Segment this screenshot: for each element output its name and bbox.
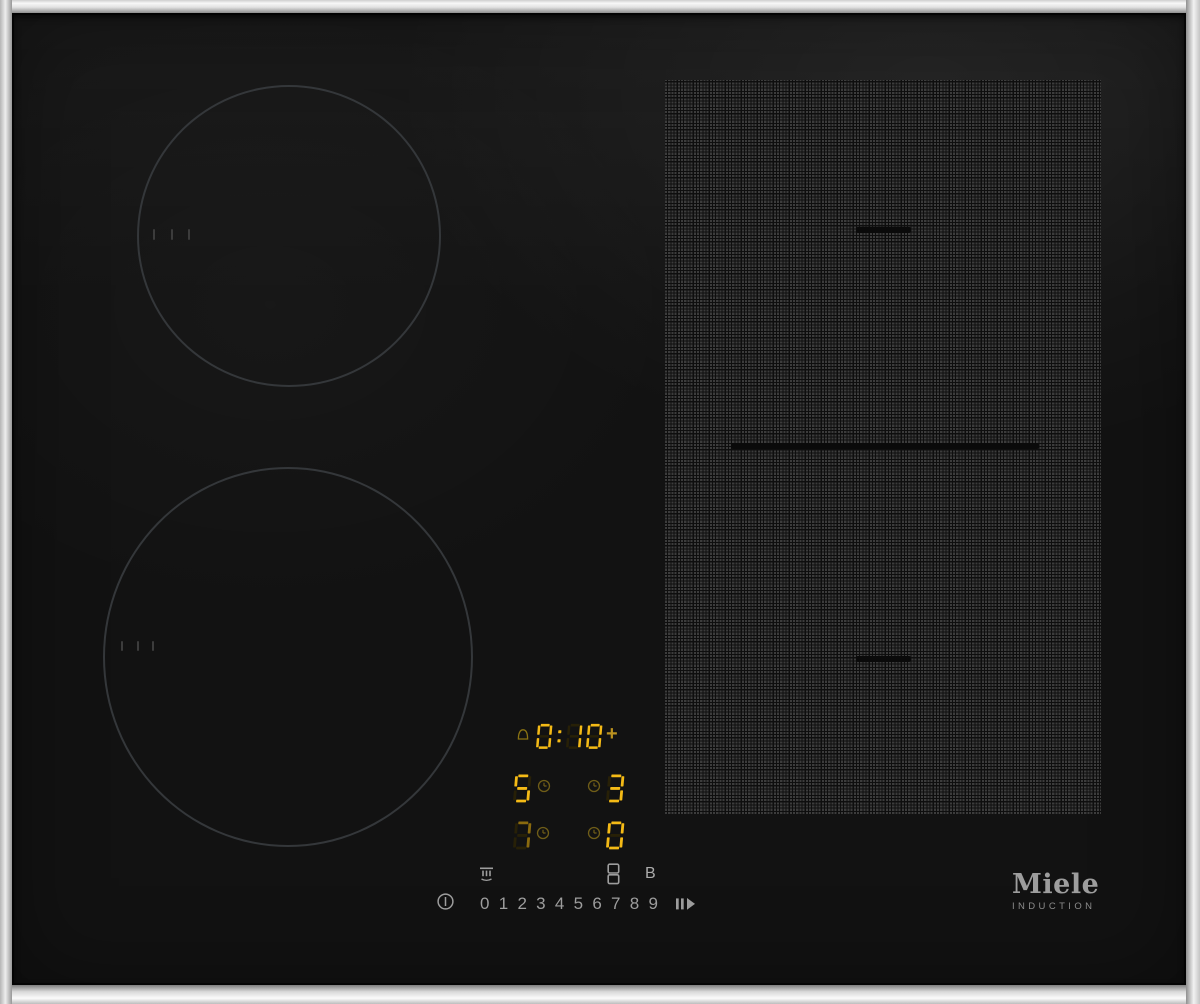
frame-bottom <box>0 985 1200 1004</box>
zone-divider-mark <box>856 656 911 662</box>
timer-clock-icon <box>587 779 601 793</box>
power-level-display <box>513 774 532 803</box>
power-level-display <box>513 821 532 850</box>
zone-marker <box>188 229 190 240</box>
cooking-zone-rear-left <box>137 85 441 387</box>
number-key-4[interactable]: 4 <box>555 894 564 914</box>
frame-right <box>1186 0 1200 1004</box>
zone-marker <box>171 229 173 240</box>
number-key-6[interactable]: 6 <box>592 894 601 914</box>
zone-marker <box>153 229 155 240</box>
number-key-row: 0123456789 <box>480 894 658 914</box>
timer-display <box>536 722 603 751</box>
timer-clock-icon <box>537 779 551 793</box>
timer-clock-icon <box>536 826 550 840</box>
alarm-bell-icon <box>516 727 530 743</box>
brand-name: Miele <box>1012 871 1099 898</box>
frame-left <box>0 0 12 1004</box>
number-key-1[interactable]: 1 <box>499 894 508 914</box>
brand-tagline: INDUCTION <box>1012 901 1099 912</box>
number-key-7[interactable]: 7 <box>611 894 620 914</box>
number-key-5[interactable]: 5 <box>574 894 583 914</box>
power-level-display <box>606 821 625 850</box>
zone-marker <box>152 641 154 651</box>
timer-clock-icon <box>587 826 601 840</box>
booster-key[interactable]: B <box>645 865 656 883</box>
zone-link-icon[interactable] <box>606 863 621 885</box>
number-key-2[interactable]: 2 <box>517 894 526 914</box>
number-key-0[interactable]: 0 <box>480 894 489 914</box>
frame-top <box>0 0 1200 13</box>
zone-marker <box>137 641 139 651</box>
zone-divider-mark <box>731 443 1039 449</box>
cooking-zone-front-left <box>103 467 473 847</box>
number-key-9[interactable]: 9 <box>648 894 657 914</box>
power-button[interactable] <box>436 892 455 911</box>
brand-logo: Miele INDUCTION <box>1012 871 1099 912</box>
zone-marker <box>121 641 123 651</box>
power-level-display <box>606 774 625 803</box>
number-key-3[interactable]: 3 <box>536 894 545 914</box>
keep-warm-icon[interactable] <box>477 866 496 883</box>
induction-cooktop: + B 0123456789 <box>0 0 1200 1004</box>
stop-and-go-key[interactable] <box>674 896 705 912</box>
number-key-8[interactable]: 8 <box>630 894 639 914</box>
zone-divider-mark <box>856 227 911 233</box>
timer-plus-key[interactable]: + <box>606 723 618 746</box>
